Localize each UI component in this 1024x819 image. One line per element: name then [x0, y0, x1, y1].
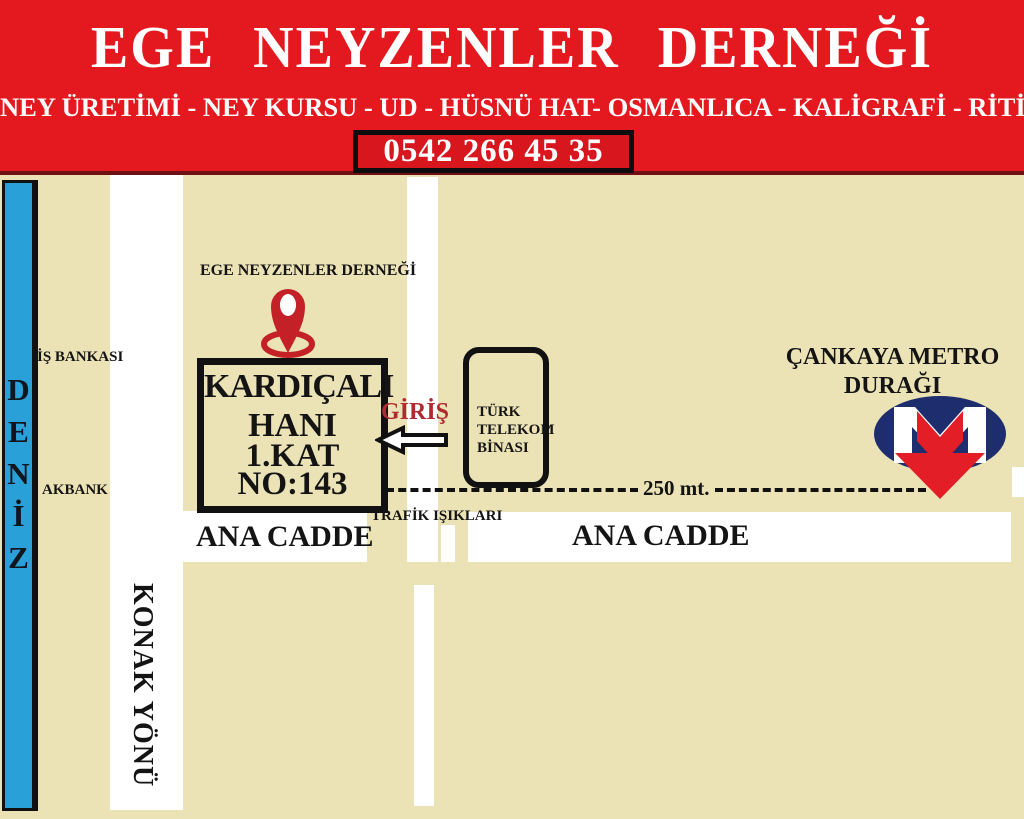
map-pin-icon — [258, 281, 320, 361]
telekom-line: TÜRK — [477, 403, 543, 421]
telekom-line: TELEKOM — [477, 421, 543, 439]
road-vertical-middle-upper — [407, 177, 438, 562]
dash-segment — [386, 488, 638, 492]
kardicali-hani-box: KARDIÇALI HANI 1.KAT NO:143 — [197, 358, 388, 513]
ana-cadde-right-label: ANA CADDE — [572, 519, 732, 553]
sea-letter: Z — [5, 537, 32, 579]
services-subtitle: NEY ÜRETİMİ - NEY KURSU - UD - HÜSNÜ HAT… — [0, 92, 1024, 123]
header-banner: EGE NEYZENLER DERNEĞİ NEY ÜRETİMİ - NEY … — [0, 0, 1024, 175]
sea-letter: İ — [5, 495, 32, 537]
entrance-label: GİRİŞ — [381, 399, 449, 426]
association-map-label: EGE NEYZENLER DERNEĞİ — [200, 262, 390, 280]
road-vertical-middle-stub — [441, 525, 455, 562]
telekom-line: BİNASI — [477, 439, 543, 457]
sea-letter: E — [5, 411, 32, 453]
akbank-label: AKBANK — [42, 482, 108, 499]
sea-strip: D E N İ Z — [2, 180, 38, 811]
ana-cadde-left-label: ANA CADDE — [196, 520, 362, 554]
road-vertical-middle-lower — [414, 585, 434, 806]
page-title: EGE NEYZENLER DERNEĞİ — [0, 14, 1024, 81]
dash-segment — [715, 488, 927, 492]
sea-letter: D — [5, 369, 32, 411]
left-arrow-icon — [375, 425, 449, 455]
traffic-lights-label: TRAFİK IŞIKLARI — [371, 508, 502, 525]
sea-letter: N — [5, 453, 32, 495]
building-name: KARDIÇALI — [204, 365, 381, 409]
distance-line: 250 mt. — [386, 480, 926, 500]
metro-stop-label: ÇANKAYA METRO DURAĞI — [775, 343, 1010, 401]
sea-label: D E N İ Z — [5, 369, 32, 579]
is-bankasi-label: İŞ BANKASI — [37, 349, 123, 366]
road-edge-patch — [1012, 467, 1024, 497]
location-map: D E N İ Z İŞ BANKASI AKBANK EGE NEYZENLE… — [0, 175, 1024, 819]
turk-telekom-box: TÜRK TELEKOM BİNASI — [463, 347, 549, 488]
phone-number-badge: 0542 266 45 35 — [353, 130, 634, 173]
building-number: NO:143 — [204, 470, 381, 498]
metro-stop-line: ÇANKAYA METRO — [775, 343, 1010, 372]
konak-direction-label: KONAK YÖNÜ — [126, 583, 158, 787]
distance-label: 250 mt. — [638, 476, 715, 501]
